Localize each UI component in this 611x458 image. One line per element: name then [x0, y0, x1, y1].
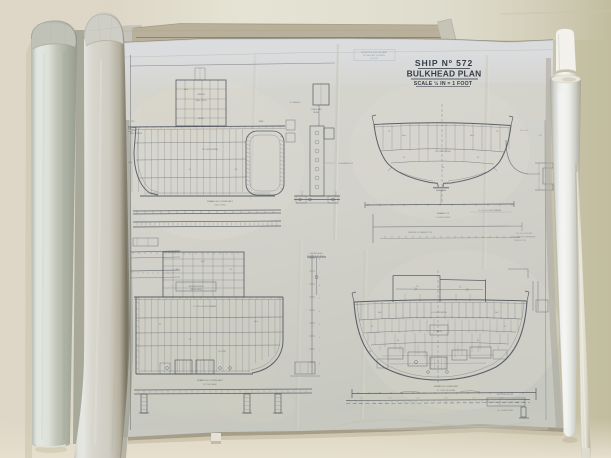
svg-text:SPACING OF FRAMES 21 IN: SPACING OF FRAMES 21 IN [408, 231, 432, 234]
svg-text:SHIP Nº 572: SHIP Nº 572 [415, 58, 473, 68]
svg-text:7.6: 7.6 [459, 287, 461, 289]
svg-text:8.2: 8.2 [176, 269, 179, 271]
svg-text:12x3: 12x3 [388, 398, 391, 400]
svg-text:8.4: 8.4 [442, 167, 444, 169]
svg-text:CASING: CASING [197, 93, 205, 96]
svg-text:HOLD: HOLD [198, 118, 204, 120]
svg-text:No.3: No.3 [201, 261, 205, 263]
svg-text:WATER TANK: WATER TANK [190, 288, 202, 291]
svg-text:5: 5 [319, 298, 320, 300]
svg-text:7: 7 [319, 272, 320, 274]
svg-text:8 x 3 ANGLE: 8 x 3 ANGLE [290, 101, 301, 104]
svg-text:RESERVE FEED: RESERVE FEED [189, 286, 204, 288]
svg-text:8.2: 8.2 [230, 269, 233, 271]
svg-text:10.2 LBS PLATING: 10.2 LBS PLATING [435, 150, 451, 153]
svg-text:FRAME 173: FRAME 173 [437, 212, 450, 215]
svg-text:FRAME 102 LOOKING AFT: FRAME 102 LOOKING AFT [197, 379, 223, 382]
svg-text:BY THE DEPT OF SHIPS: BY THE DEPT OF SHIPS [363, 55, 385, 57]
svg-text:7.6: 7.6 [496, 131, 498, 133]
svg-text:No.1: No.1 [470, 135, 474, 137]
svg-text:9.1: 9.1 [189, 169, 192, 171]
svg-text:9.1: 9.1 [189, 339, 192, 341]
svg-text:SIDE GIRDER: SIDE GIRDER [130, 133, 143, 135]
svg-text:7.6: 7.6 [388, 131, 390, 133]
svg-text:SPACED 21 IN: SPACED 21 IN [514, 239, 526, 242]
svg-text:FRAME 40 LOOKING AFT: FRAME 40 LOOKING AFT [207, 200, 234, 203]
svg-text:6: 6 [319, 285, 320, 287]
svg-text:9.1: 9.1 [477, 157, 480, 159]
svg-text:SECTION AT FR 64: SECTION AT FR 64 [497, 393, 513, 396]
svg-text:DETAIL: DETAIL [313, 111, 319, 114]
svg-text:12x3: 12x3 [416, 398, 419, 400]
svg-text:W.T. BULKHEAD: W.T. BULKHEAD [203, 383, 217, 386]
svg-text:APPROVED FOR RELEASE: APPROVED FOR RELEASE [361, 51, 387, 54]
svg-text:4: 4 [319, 311, 320, 313]
svg-text:FRAME 64 LOOKING AFT: FRAME 64 LOOKING AFT [434, 385, 459, 388]
svg-text:No.1: No.1 [402, 135, 406, 137]
svg-text:10.2 LBS: 10.2 LBS [218, 351, 226, 353]
svg-text:No.7: No.7 [378, 312, 382, 314]
svg-text:WELL HOLD: WELL HOLD [196, 100, 207, 102]
svg-text:1: 1 [319, 350, 320, 352]
svg-text:0: 0 [319, 363, 320, 365]
svg-text:7.6: 7.6 [369, 351, 371, 353]
svg-text:TANK: TANK [259, 120, 265, 123]
svg-text:15.3 LBS PLATING: 15.3 LBS PLATING [431, 311, 447, 314]
svg-text:SCALE DETAIL: SCALE DETAIL [214, 204, 226, 207]
svg-text:12x3: 12x3 [444, 398, 447, 400]
svg-text:OIL TIGHT BULKHEAD: OIL TIGHT BULKHEAD [437, 389, 457, 392]
svg-text:8 DIA PILLAR: 8 DIA PILLAR [310, 108, 322, 111]
svg-text:SCALE ½ IN = 1 FOOT: SCALE ½ IN = 1 FOOT [414, 80, 473, 87]
svg-text:2: 2 [319, 337, 320, 339]
svg-text:BULB ANGLE STIFFENERS: BULB ANGLE STIFFENERS [513, 236, 537, 239]
svg-text:No.5: No.5 [254, 321, 258, 323]
svg-text:8.4: 8.4 [477, 340, 479, 342]
svg-text:HATCH: HATCH [436, 330, 443, 333]
svg-text:12 x 3 x 20.5 LBS CHANNEL: 12 x 3 x 20.5 LBS CHANNEL [478, 209, 501, 212]
svg-text:12x3: 12x3 [472, 398, 475, 400]
svg-text:3: 3 [319, 324, 320, 326]
svg-text:9.1: 9.1 [371, 326, 374, 328]
svg-text:No 1943: No 1943 [370, 58, 377, 60]
svg-text:CAMBER BEAM: CAMBER BEAM [310, 252, 323, 255]
svg-text:8.2: 8.2 [235, 169, 238, 171]
svg-text:12 x 3 CH: 12 x 3 CH [520, 130, 528, 132]
svg-text:10 x 3.5 x 24.7 LBS: 10 x 3.5 x 24.7 LBS [516, 233, 532, 235]
svg-text:10 x 3.5 ANGLE BAR: 10 x 3.5 ANGLE BAR [497, 409, 514, 412]
svg-text:No.7: No.7 [495, 312, 499, 314]
svg-text:8.4: 8.4 [159, 324, 162, 326]
svg-text:9.1: 9.1 [403, 157, 406, 159]
svg-text:8: 8 [319, 259, 320, 261]
svg-text:LOOKING FORD: LOOKING FORD [436, 217, 451, 219]
svg-text:No.2: No.2 [184, 89, 188, 91]
svg-text:6 DIA MANHOLES: 6 DIA MANHOLES [338, 162, 354, 165]
svg-text:10.5 LBS PLATING: 10.5 LBS PLATING [202, 148, 219, 151]
svg-text:BULKHEAD PLAN: BULKHEAD PLAN [407, 69, 482, 79]
svg-text:W.T.: W.T. [131, 121, 135, 123]
svg-text:12 x 3.5 x 30 LBS CHANNEL: 12 x 3.5 x 30 LBS CHANNEL [193, 305, 216, 308]
svg-text:12x3: 12x3 [360, 398, 363, 400]
svg-text:9.1: 9.1 [504, 326, 507, 328]
svg-text:8.4: 8.4 [397, 340, 399, 342]
svg-text:7.6: 7.6 [416, 286, 418, 288]
